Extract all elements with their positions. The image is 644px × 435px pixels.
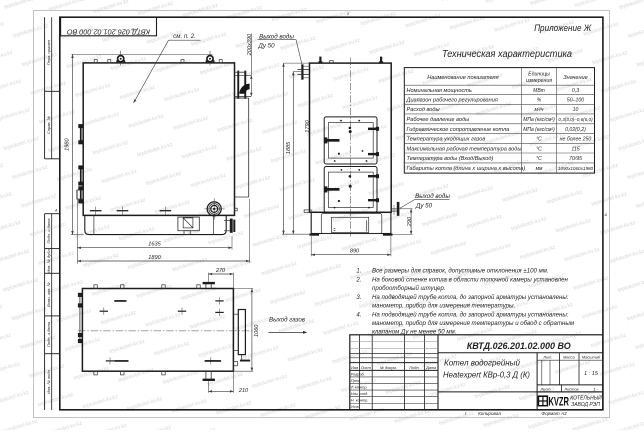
svg-text:Инв. № дубл: Инв. № дубл [46,249,51,273]
svg-text:Техническая характеристика: Техническая характеристика [442,49,573,60]
svg-text:4.: 4. [356,311,361,318]
svg-text:2.: 2. [355,276,361,283]
svg-text:Листов: Листов [563,387,578,392]
svg-text:Габариты котла (длина х ширина: Габариты котла (длина х ширина х высота) [407,166,526,172]
svg-text:Дата: Дата [425,365,437,370]
svg-text:1890х1060х1980: 1890х1060х1980 [558,166,594,171]
svg-text:0,3: 0,3 [572,88,579,94]
svg-text:Масса: Масса [563,354,575,359]
svg-text:Выход воды: Выход воды [415,193,450,200]
svg-text:Формат А3: Формат А3 [541,411,567,416]
svg-text:м³/ч: м³/ч [534,107,543,113]
svg-text:манометр, прибор для измерения: манометр, прибор для измерения температу… [372,320,575,327]
svg-text:Выход воды: Выход воды [259,33,294,40]
svg-text:Гидравлическое сопротивление к: Гидравлическое сопротивление котла [407,127,510,133]
svg-text:Взам. инв. №: Взам. инв. № [46,281,51,306]
svg-text:А: А [54,209,58,213]
svg-text:1 : 15: 1 : 15 [584,371,599,377]
svg-text:Максимальная рабочая температу: Максимальная рабочая температура воды [407,146,522,152]
svg-text:Все размеры для справок, допус: Все размеры для справок, допустимые откл… [372,268,549,275]
svg-text:200х390: 200х390 [247,33,253,56]
svg-text:А: А [604,213,608,217]
svg-text:115: 115 [571,146,579,152]
svg-text:КВТД.026.201.02.000 ВО: КВТД.026.201.02.000 ВО [467,340,572,351]
svg-text:не более 250: не более 250 [560,137,592,143]
svg-text:измерения: измерения [526,78,552,84]
svg-text:KVZR: KVZR [548,395,569,409]
svg-text:Номинальная мощность: Номинальная мощность [407,88,472,94]
svg-text:пробоотборный штуцер.: пробоотборный штуцер. [372,285,446,292]
svg-text:Котел водогрейный: Котел водогрейный [444,359,520,368]
svg-text:1790: 1790 [305,119,311,132]
svg-text:1890: 1890 [148,255,161,261]
svg-text:На подводящей трубе котла, до: На подводящей трубе котла, до запорной а… [372,294,569,301]
svg-text:Подп.: Подп. [409,365,419,370]
svg-text:210: 210 [238,388,249,394]
svg-text:Ду 50: Ду 50 [257,43,275,50]
svg-text:ЗАВОД РЭП: ЗАВОД РЭП [571,402,600,408]
svg-text:Нач. отд.: Нач. отд. [351,391,368,396]
svg-text:1: 1 [593,387,595,392]
svg-text:Утв.: Утв. [351,404,360,409]
svg-text:1.: 1. [356,268,361,275]
svg-text:Лист: Лист [360,365,372,370]
svg-text:290: 290 [407,216,413,227]
svg-text:890: 890 [350,248,360,254]
svg-text:Температура воды (Вход/Выход): Температура воды (Вход/Выход) [407,156,494,162]
svg-text:Разраб.: Разраб. [351,371,365,376]
svg-text:Подп. и дата: Подп. и дата [46,321,51,347]
svg-text:КОТЕЛЬНЫЙ: КОТЕЛЬНЫЙ [570,394,602,402]
svg-text:1980: 1980 [64,137,70,150]
svg-text:Ду 50: Ду 50 [415,202,433,209]
svg-text:манометр, прибор для измерения: манометр, прибор для измерения температу… [372,303,515,310]
svg-text:Изм: Изм [351,365,359,370]
svg-text:°С: °С [536,146,542,152]
svg-text:270: 270 [215,268,226,274]
svg-text:МВт: МВт [533,88,545,94]
svg-text:Диапазон рабочего регулировани: Диапазон рабочего регулирования [406,98,498,104]
svg-text:Перв. примен: Перв. примен [46,39,51,65]
svg-text:Расход воды: Расход воды [407,107,440,113]
svg-text:На подводящей трубе котла, до: На подводящей трубе котла, до запорной а… [372,311,569,318]
svg-text:0,3(3,0)–0,6(6,0): 0,3(3,0)–0,6(6,0) [558,117,593,122]
svg-text:1885: 1885 [286,141,292,154]
svg-text:Значение: Значение [563,75,588,81]
svg-text:°С: °С [536,156,542,162]
svg-text:0,02(0,2): 0,02(0,2) [565,127,586,133]
svg-text:Наименование показателя: Наименование показателя [427,75,498,81]
svg-text:Температура уходящих газов: Температура уходящих газов [407,137,486,143]
svg-text:Лист: Лист [539,387,551,392]
svg-text:МПа (кгс/см²): МПа (кгс/см²) [523,117,555,123]
svg-text:Единицы: Единицы [528,72,550,78]
svg-text:Рабочее давление воды: Рабочее давление воды [407,117,470,123]
svg-text:Инв. № подл: Инв. № подл [46,369,51,393]
svg-text:Масштаб: Масштаб [582,354,601,359]
svg-text:Т. контр.: Т. контр. [351,385,368,390]
svg-text:70/95: 70/95 [569,156,582,162]
svg-text:см. п. 2.: см. п. 2. [173,33,196,40]
svg-text:1060: 1060 [254,324,260,337]
svg-text:Выход газов: Выход газов [269,316,306,323]
svg-text:1: 1 [465,411,467,416]
svg-text:Копировал: Копировал [478,411,501,416]
svg-text:Н. контр.: Н. контр. [351,398,369,403]
svg-text:КВТД.026.201.02.000 ВО: КВТД.026.201.02.000 ВО [67,28,150,37]
svg-text:Справ. №: Справ. № [46,115,51,134]
svg-text:Heatexpert КВр-0,3 Д (К): Heatexpert КВр-0,3 Д (К) [443,371,530,380]
svg-text:50–100: 50–100 [567,98,584,104]
svg-text:%: % [537,98,542,104]
svg-text:°С: °С [536,137,542,143]
svg-text:3.: 3. [356,294,361,301]
svg-text:1635: 1635 [148,242,161,248]
svg-text:Пров.: Пров. [351,378,361,383]
svg-text:Подп. и дата: Подп. и дата [46,218,51,244]
svg-text:№ докум.: № докум. [380,365,397,370]
svg-text:Приложение Ж: Приложение Ж [534,23,592,33]
svg-text:1: 1 [347,11,349,16]
svg-text:10: 10 [573,107,579,113]
svg-text:На боковой стенке котла в обла: На боковой стенке котла в области топочн… [372,276,569,283]
svg-text:МПа (кгс/см²): МПа (кгс/см²) [523,127,555,133]
svg-text:мм: мм [536,166,543,172]
svg-text:Лит.: Лит. [542,354,552,359]
